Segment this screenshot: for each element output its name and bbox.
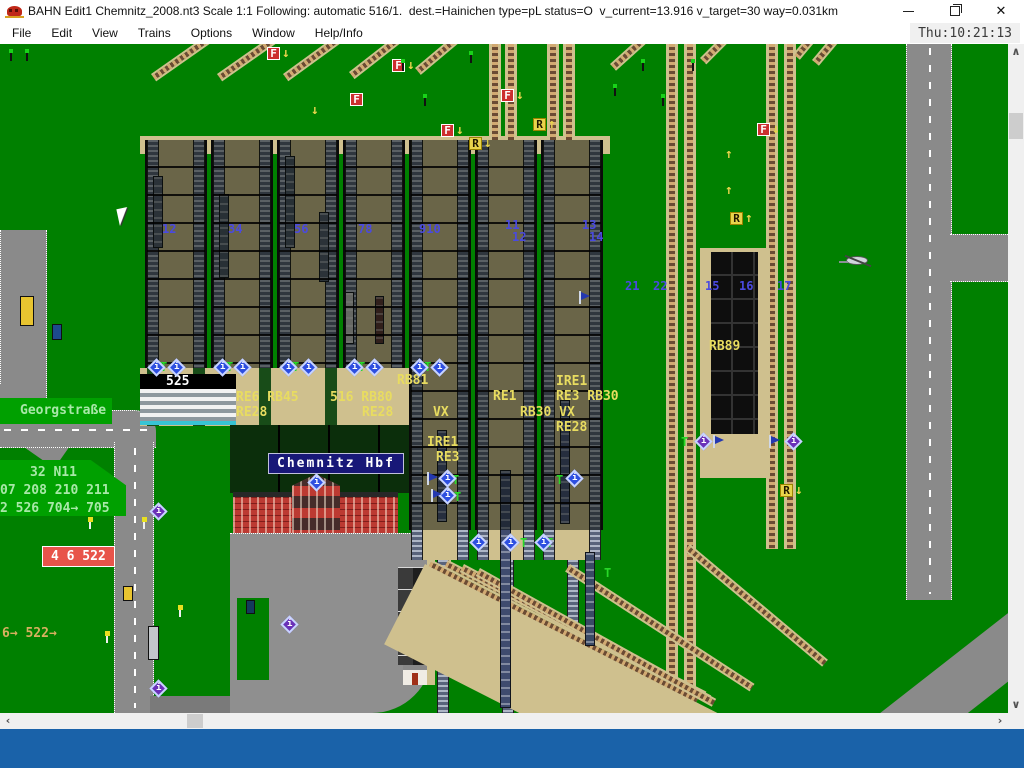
bay-canopy [409,140,471,530]
menu-view[interactable]: View [82,22,128,44]
route-label: 525 [166,375,189,388]
timetable-stop-letter: T [556,474,563,486]
train-number-badge: 4 6 522 [42,546,115,567]
platform-number: 78 [358,223,372,235]
flag-signal-icon [427,472,439,485]
signal-arrow: ↓ [456,124,464,137]
bay-canopy [145,140,207,368]
flag-signal-icon [769,435,781,448]
minimize-icon [903,11,914,12]
timetable-stop-letter: T [520,537,527,549]
route-label: 516 RB80 [330,391,393,404]
route-label: IRE1 [556,375,587,388]
scrollbar-corner [1008,713,1024,729]
bay-canopy [211,140,273,368]
platform-number: 12 [162,223,176,235]
info-glyph: i [372,363,377,372]
info-glyph: i [156,684,161,693]
route-label: RE28 [236,406,267,419]
platform-number: 17 [777,280,791,292]
menu-trains[interactable]: Trains [128,22,181,44]
signal-pole-icon [660,94,666,106]
head-building-striped [140,389,236,425]
restore-button[interactable] [932,0,978,22]
platform-number: 16 [739,280,753,292]
menu-items: FileEditViewTrainsOptionsWindowHelp/Info [2,22,373,44]
signal-marker-r: R [730,212,743,225]
road-right-branch [950,234,1008,282]
menu-file[interactable]: File [2,22,41,44]
horizontal-scroll-thumb[interactable] [187,714,203,728]
close-button[interactable]: ✕ [978,0,1024,22]
restore-icon [950,6,960,16]
signal-arrow: ↓ [516,89,524,102]
signal-marker-r: R [469,137,482,150]
menu-options[interactable]: Options [181,22,242,44]
mainline-track-2 [684,44,696,713]
platform-number: 56 [294,223,308,235]
scroll-up-button[interactable]: ∧ [1008,44,1024,60]
timetable-stop-letter: T [604,567,611,579]
mouse-cursor [116,207,130,226]
info-glyph: i [286,363,291,372]
info-glyph: i [417,363,422,372]
diagonal-track [793,44,896,60]
info-glyph: i [352,363,357,372]
window-title: BAHN Edit1 Chemnitz_2008.nt3 Scale 1:1 F… [28,4,838,18]
platform-number: 21 [625,280,639,292]
signal-pole-icon [24,49,30,61]
window-controls: ✕ [886,0,1024,22]
bus-stop-icon [87,517,93,529]
road-vehicle [148,626,159,660]
road-right-vertical [906,44,952,600]
simulation-clock: Thu:10:21:13 [910,23,1020,43]
timetable-stop-letter: T [681,436,688,448]
info-glyph: i [156,507,161,516]
vertical-scrollbar[interactable]: ∧ ∨ [1008,44,1024,713]
road-vehicle [123,586,133,601]
signal-pole-icon [422,94,428,106]
route-label: RE3 RB30 [556,390,619,403]
map-canvas[interactable]: Chemnitz Hbf 4 6 522 525RE6 RB45RE28516 … [0,44,1008,713]
route-label: Georgstraße [20,404,106,417]
route-label: RB89 [709,340,740,353]
info-glyph: i [287,620,292,629]
helicopter-icon [846,256,868,265]
route-label: RB30 VX [520,406,575,419]
signal-marker-f: F [350,93,363,106]
info-glyph: i [541,538,546,547]
title-bar: BAHN Edit1 Chemnitz_2008.nt3 Scale 1:1 F… [0,0,1024,22]
bus-stop-icon [104,631,110,643]
info-glyph: i [240,363,245,372]
signal-pole-icon [468,51,474,63]
approach-track [563,44,575,140]
route-label: VX [433,406,449,419]
info-glyph: i [445,491,450,500]
menu-edit[interactable]: Edit [41,22,82,44]
bay-canopy [277,140,339,368]
approach-track [489,44,501,140]
diagonal-track [812,44,915,66]
route-label: IRE1 [427,436,458,449]
signal-marker-f: F [757,123,770,136]
road-vehicle [246,600,255,614]
menu-window[interactable]: Window [242,22,305,44]
road-vehicle [52,324,62,340]
signal-pole-icon [8,49,14,61]
signal-arrow: ↓ [311,104,319,117]
signal-arrow: ↑ [725,148,733,161]
platform-number: 34 [228,223,242,235]
flag-signal-icon [713,435,725,448]
horizontal-scrollbar[interactable]: ‹ › [0,713,1008,729]
minimize-button[interactable] [886,0,932,22]
flag-signal-icon [579,291,591,304]
info-glyph: i [314,478,319,487]
station-name-label: Chemnitz Hbf [268,453,404,474]
signal-pole-icon [690,59,696,71]
bahn-logo-icon [7,6,22,16]
info-glyph: i [791,437,796,446]
platform-number: 22 [653,280,667,292]
info-glyph: i [174,363,179,372]
menu-helpinfo[interactable]: Help/Info [305,22,373,44]
info-glyph: i [220,363,225,372]
signal-arrow: ↑ [745,212,753,225]
diagonal-track [684,544,828,667]
bus-stop-icon [141,517,147,529]
road-vehicle [20,296,34,326]
train-unit [585,552,595,646]
route-label: RE6 RB45 [236,391,299,404]
scroll-left-button[interactable]: ‹ [0,713,16,729]
mainline-track-4 [784,44,796,549]
info-glyph: i [476,538,481,547]
route-label: 6→ 522→ [2,627,57,640]
signal-pole-icon [400,59,406,71]
platform-number: 12 [512,231,526,243]
platform-number: 14 [589,231,603,243]
lane-marking [134,448,136,708]
signal-arrow: ↓ [772,123,780,136]
info-glyph: i [508,538,513,547]
signal-pole-icon [612,84,618,96]
signal-arrow: ↓ [407,59,415,72]
info-glyph: i [701,437,706,446]
signal-arrow: ↑ [725,184,733,197]
route-label: RE28 [362,406,393,419]
lane-marking [4,429,150,431]
flag-signal-icon [431,489,443,502]
signal-marker-r: R [533,118,546,131]
info-glyph: i [306,363,311,372]
taskbar[interactable] [0,729,1024,768]
road-bottom-right [858,589,1008,713]
signal-arrow: ↑ [548,118,556,131]
scroll-down-button[interactable]: ∨ [1008,697,1024,713]
shed-house-door [412,673,418,685]
route-label: RE28 [556,421,587,434]
bus-stop-icon [177,605,183,617]
platform-number: 15 [705,280,719,292]
info-glyph: i [154,363,159,372]
vertical-scroll-thumb[interactable] [1009,113,1023,139]
menu-bar: FileEditViewTrainsOptionsWindowHelp/Info… [0,22,1024,44]
signal-marker-f: F [267,47,280,60]
signal-arrow: ↓ [484,137,492,150]
signal-marker-f: F [441,124,454,137]
route-label: RB81 [397,374,428,387]
route-label: RE1 [493,390,516,403]
bay-canopy [343,140,405,368]
info-glyph: i [437,363,442,372]
platform-number: 910 [419,223,441,235]
bay-canopy [475,140,537,530]
signal-pole-icon [640,59,646,71]
lane-marking [929,48,931,594]
route-label: 2 526 704→ 705 [0,502,110,515]
signal-marker-r: R [780,484,793,497]
signal-marker-f: F [501,89,514,102]
route-label: 32 N11 [30,466,77,479]
route-label: 07 208 210 211 [0,484,110,497]
route-label: RE3 [436,451,459,464]
scroll-right-button[interactable]: › [992,713,1008,729]
signal-arrow: ↓ [795,484,803,497]
mainline-track-1 [666,44,678,713]
info-glyph: i [445,474,450,483]
bahn-app-window: BAHN Edit1 Chemnitz_2008.nt3 Scale 1:1 F… [0,0,1024,768]
info-glyph: i [572,474,577,483]
signal-arrow: ↓ [282,47,290,60]
